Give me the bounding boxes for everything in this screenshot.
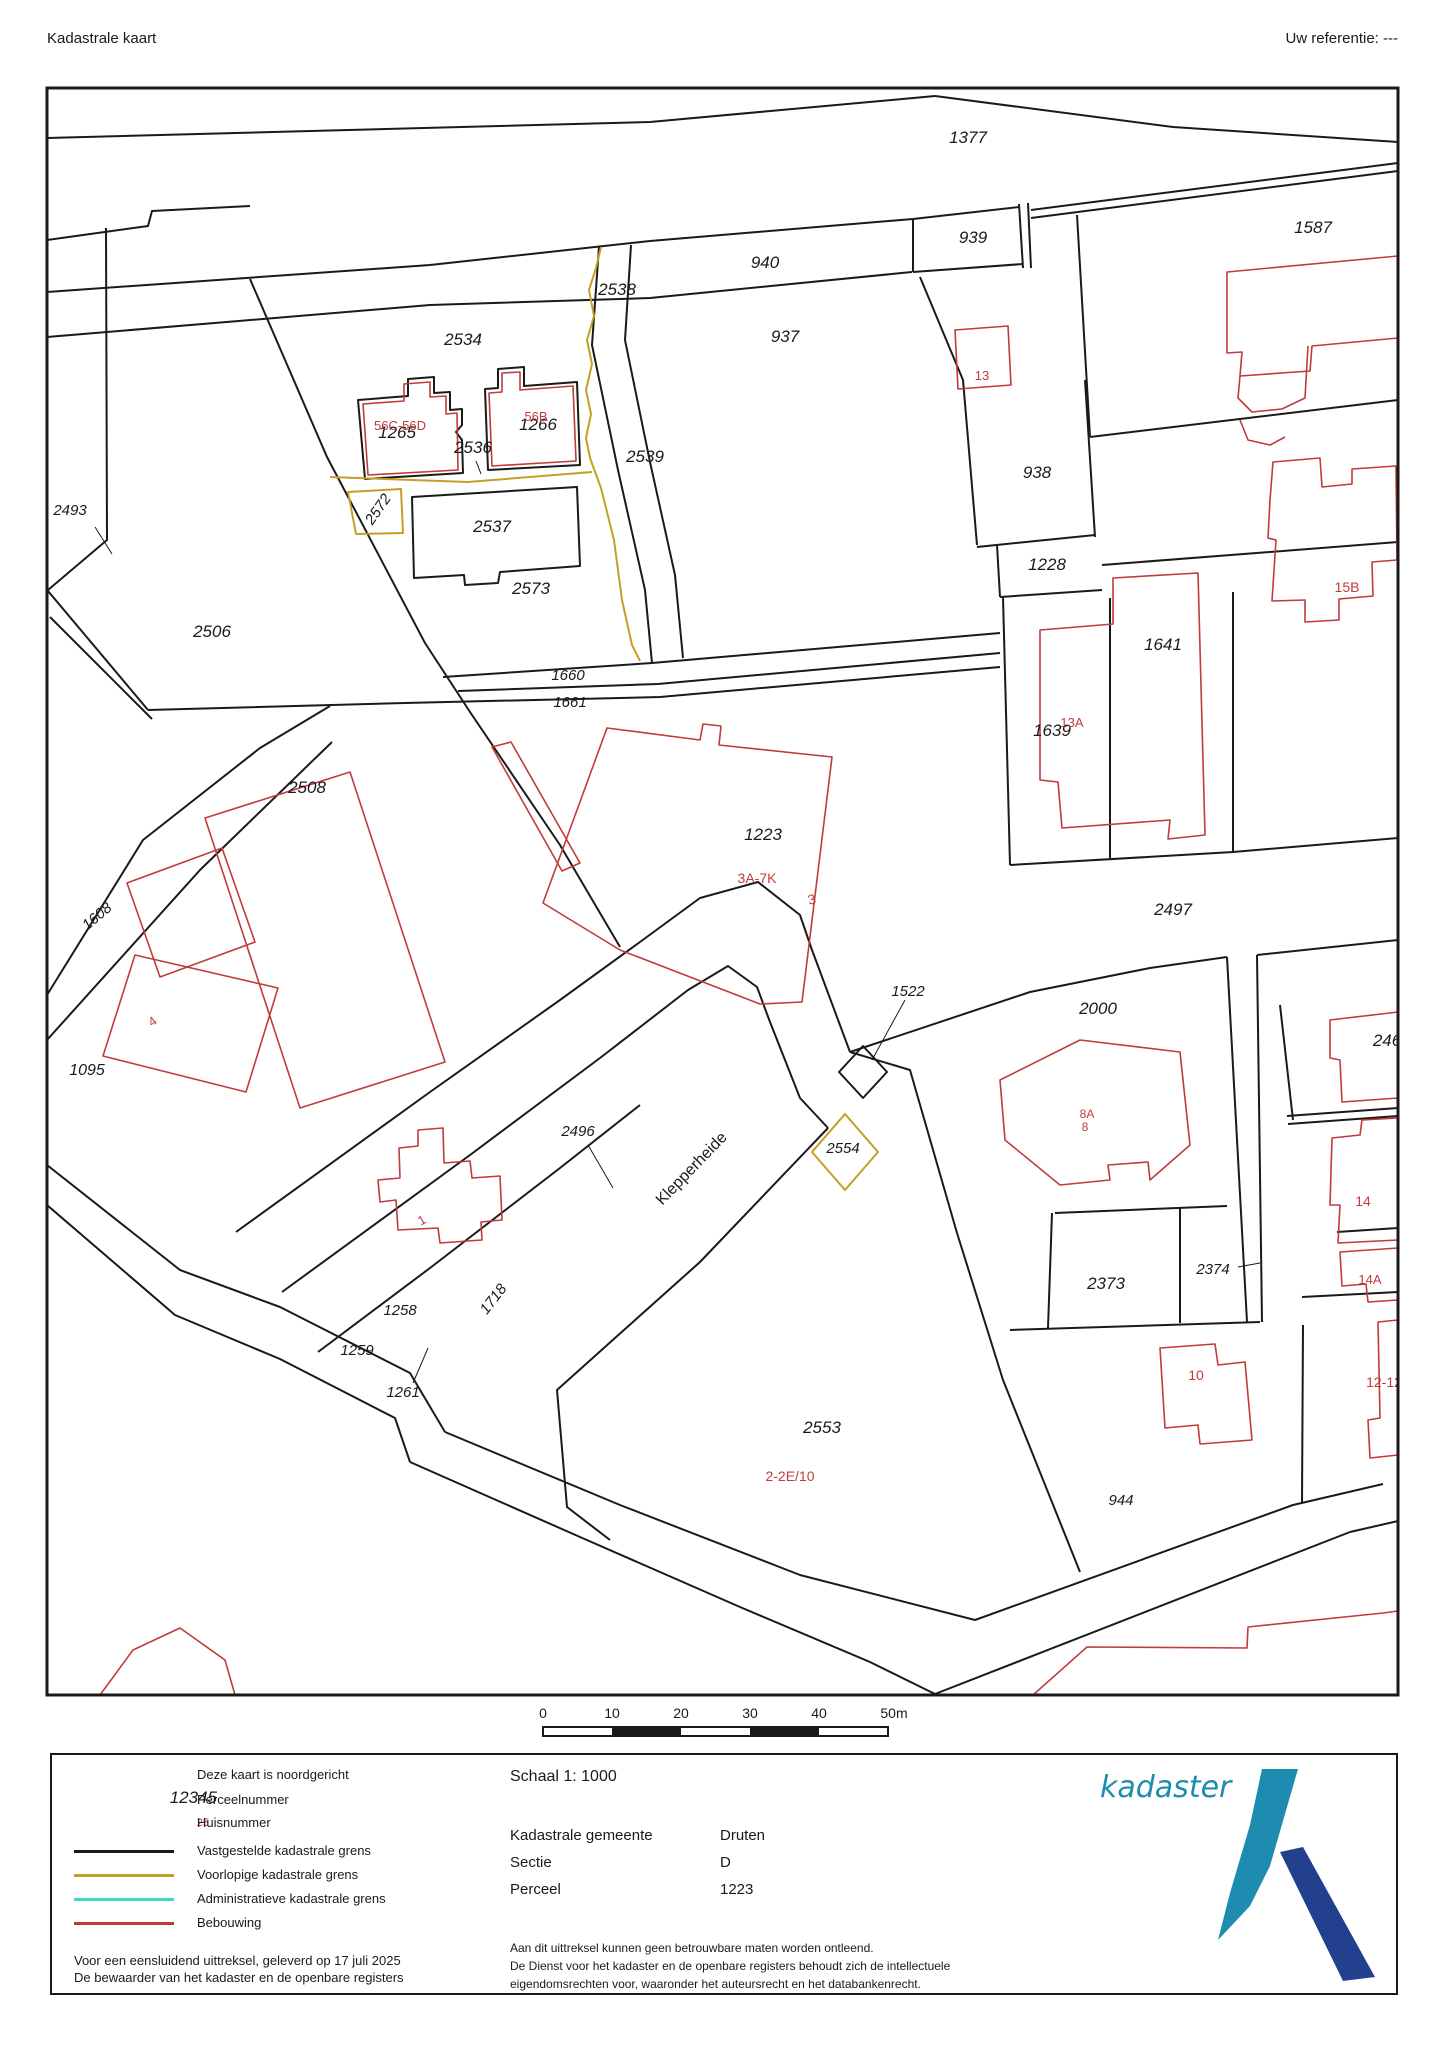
boundary-line [282,966,828,1292]
boundary-line [1028,203,1031,268]
legend-item-label: Administratieve kadastrale grens [197,1891,386,1906]
building-outline [103,955,278,1092]
parcel-label-1587: 1587 [1294,218,1332,237]
parcel-label-2506: 2506 [192,622,231,641]
parcel-label-2534: 2534 [443,330,482,349]
legend-item-label: Bebouwing [197,1915,261,1930]
parcel-label-940: 940 [751,253,780,272]
cadastral-map: 1377940939158725389372534253625391265126… [0,0,1448,2048]
section-value: D [720,1854,731,1871]
boundary-line [47,206,250,240]
parcel-label-937: 937 [771,327,800,346]
boundary-line [1102,542,1398,565]
legend-house-label: Huisnummer [197,1815,271,1830]
house-number-2-2E/10: 2-2E/10 [765,1468,814,1484]
boundary-line [410,1462,935,1694]
parcel-label-1522: 1522 [891,983,925,1000]
parcel-label-1095: 1095 [69,1062,105,1079]
building-outline [543,724,832,1004]
scale-tick-label: 40 [811,1705,827,1721]
scale-tick-label: 50m [880,1705,907,1721]
house-number-14: 14 [1355,1193,1371,1209]
scale-bar-segment [543,1727,612,1736]
boundary-line [47,96,935,138]
scale-bar: 01020304050m [539,1705,908,1736]
boundary-line [1031,163,1398,210]
municipality-value: Druten [720,1827,765,1844]
scale-bar-segment [819,1727,888,1736]
boundary-line [850,957,1227,1052]
boundary-line [1000,590,1102,597]
house-number-4: 4 [145,1013,160,1029]
building-swatch [74,1922,174,1925]
house-number-10: 10 [1188,1367,1204,1383]
boundary-line [236,882,850,1232]
parcel-label-1377: 1377 [949,128,987,147]
boundary-line [935,1521,1398,1694]
building-outline [1040,573,1205,839]
parcel-field-value: 1223 [720,1881,753,1898]
house-number-13: 13 [975,368,989,383]
parcel-label-938: 938 [1023,463,1052,482]
building-outline [492,742,580,871]
house-number-14A: 14A [1358,1272,1381,1287]
parcel-label-2537: 2537 [472,517,511,536]
house-number-8: 8 [1082,1120,1089,1134]
parcel-label-2373: 2373 [1086,1274,1125,1293]
boundary-line [443,633,1000,677]
parcel-label-2496: 2496 [560,1123,595,1140]
parcel-label-2374: 2374 [1195,1261,1229,1278]
parcel-label-2497: 2497 [1153,900,1192,919]
north-note: Deze kaart is noordgericht [197,1767,349,1782]
parcel-label-939: 939 [959,228,988,247]
provisional-boundary-swatch [74,1874,174,1877]
parcel-label-1661: 1661 [553,694,586,711]
boundary-line [1227,957,1247,1322]
parcel-label-1660: 1660 [551,667,585,684]
boundary-line [50,617,152,719]
parcel-label-944: 944 [1108,1492,1133,1509]
scale-tick-label: 0 [539,1705,547,1721]
boundary-line [412,487,580,585]
boundary-line [1019,204,1023,268]
boundary-line [1085,380,1095,537]
boundary-line [920,277,977,545]
scale-tick-label: 30 [742,1705,758,1721]
boundary-line [872,1000,905,1060]
boundary-line [1257,955,1262,1322]
municipality-label: Kadastrale gemeente [510,1827,653,1844]
boundary-line [1288,1116,1398,1124]
boundary-line [47,207,1019,292]
scale-tick-label: 20 [673,1705,689,1721]
parcel-label-1223: 1223 [744,825,782,844]
section-label: Sectie [510,1854,552,1871]
boundary-line [588,1145,613,1188]
parcel-label-2573: 2573 [511,579,550,598]
parcel-label-2536: 2536 [453,438,492,457]
boundary-line [839,1046,887,1098]
disclaimer-line: eigendomsrechten voor, waaronder het aut… [510,1977,921,1991]
scale-bar-segment [612,1727,681,1736]
building-outline [1330,1118,1398,1243]
house-number-15B: 15B [1335,579,1360,595]
house-number-1: 1 [415,1212,429,1229]
established-boundary-swatch [74,1850,174,1853]
house-number-13A: 13A [1060,715,1083,730]
boundary-line [997,545,1000,597]
boundary-line [850,1052,1080,1572]
building-outline [1240,420,1285,445]
building-outline [1000,1040,1190,1185]
parcel-label-1608: 1608 [79,899,116,934]
boundary-line [458,653,1000,691]
building-outline [100,1628,235,1695]
boundary-line [47,1165,445,1432]
parcel-label-1258: 1258 [383,1302,417,1319]
keeper-note: De bewaarder van het kadaster en de open… [74,1970,404,1985]
legend-parcel-label: Perceelnummer [197,1792,289,1807]
legend-box: Deze kaart is noordgericht 12345 Perceel… [50,1753,1398,1995]
parcel-label-2000: 2000 [1078,999,1117,1018]
boundary-line [1077,215,1090,437]
parcel-label-1259: 1259 [340,1342,374,1359]
boundary-line [1048,1213,1052,1328]
building-outline [1160,1344,1252,1444]
house-number-56C-56D: 56C-56D [374,418,426,433]
boundary-line [1055,1206,1227,1213]
legend-item-label: Voorlopige kadastrale grens [197,1867,358,1882]
boundary-line [47,706,330,995]
boundary-line [1280,1005,1293,1120]
building-outline [1330,1012,1398,1102]
parcel-label-1641: 1641 [1144,635,1182,654]
boundary-line [1257,940,1398,955]
building-outline [1033,1611,1398,1695]
parcel-label-2539: 2539 [625,447,664,466]
building-outline [1227,256,1398,376]
parcel-label-2538: 2538 [597,280,636,299]
scale-bar-segment [750,1727,819,1736]
boundary-line [318,1105,640,1352]
provisional-boundary-line [590,458,640,661]
parcel-label-1261: 1261 [386,1384,419,1401]
building-outline [1268,458,1397,622]
parcel-label-1228: 1228 [1028,555,1066,574]
boundary-line [95,527,112,554]
boundary-line [1302,1325,1303,1502]
boundary-line [43,585,148,710]
provisional-boundary-line [468,472,592,482]
house-number-3A-7K: 3A-7K [738,870,778,886]
boundary-line [1238,1263,1260,1267]
scale-bar-segment [681,1727,750,1736]
scale-tick-label: 10 [604,1705,620,1721]
building-outline [1238,346,1308,412]
boundary-line [913,264,1023,272]
boundary-line [413,1348,428,1383]
house-number-8A: 8A [1080,1107,1095,1121]
boundary-line [1003,597,1010,865]
house-number-56B: 56B [524,409,547,424]
administrative-boundary-swatch [74,1898,174,1901]
boundary-line [977,535,1095,547]
parcel-label-2508: 2508 [287,778,326,797]
boundary-line [47,1205,410,1462]
boundary-line [1337,1228,1398,1232]
boundary-line [445,1432,1383,1620]
boundary-line [935,96,1398,142]
parcel-field-label: Perceel [510,1881,561,1898]
legend-item-label: Vastgestelde kadastrale grens [197,1843,371,1858]
boundary-line [48,228,107,590]
boundary-line [476,461,481,474]
building-outline [205,772,445,1108]
parcel-label-Klepperheide: Klepperheide [653,1129,731,1209]
parcel-label-2493: 2493 [52,502,87,519]
boundary-line [1287,1108,1398,1116]
kadaster-map-extract-page: Kadastrale kaart Uw referentie: --- 1377… [0,0,1448,2048]
scale-label: Schaal 1: 1000 [510,1768,617,1786]
map-content: 1377940939158725389372534253625391265126… [43,96,1402,1695]
boundary-line [1031,171,1398,218]
disclaimer-line: Aan dit uittreksel kunnen geen betrouwba… [510,1941,874,1955]
disclaimer-line: De Dienst voor het kadaster en de openba… [510,1959,950,1973]
boundary-line [1302,1292,1398,1297]
parcel-label-2572: 2572 [361,490,395,528]
delivery-note: Voor een eensluidend uittreksel, gelever… [74,1953,401,1968]
boundary-line [1010,838,1398,865]
parcel-label-2554: 2554 [825,1140,859,1157]
parcel-label-2553: 2553 [802,1418,841,1437]
parcel-label-1718: 1718 [476,1280,510,1317]
